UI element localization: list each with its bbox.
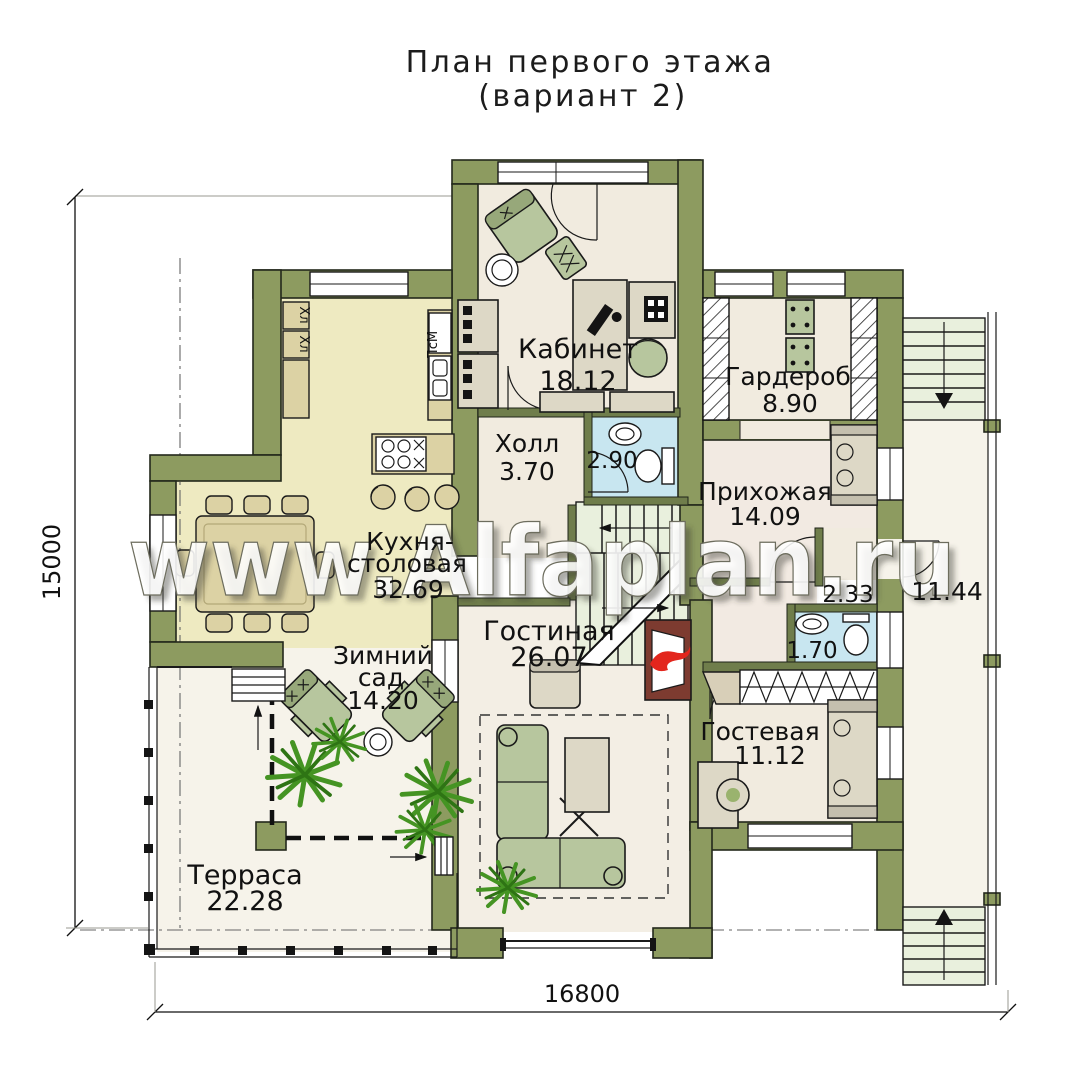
right-stairs-bottom bbox=[903, 907, 985, 985]
fireplace bbox=[645, 620, 691, 700]
dimension-horizontal-value: 16800 bbox=[544, 980, 620, 1008]
guest-bed bbox=[828, 700, 877, 818]
guest-bottom-window bbox=[748, 824, 852, 848]
label-wintergarden-area: 14.20 bbox=[347, 686, 419, 715]
entry-furniture bbox=[831, 425, 877, 505]
title-line-2: (вариант 2) bbox=[478, 79, 688, 114]
label-kitchen-2: столовая bbox=[347, 549, 467, 578]
wintergarden-column bbox=[256, 822, 286, 850]
wardrobe-window-1 bbox=[715, 272, 773, 296]
dishwasher-label: ПсМ bbox=[426, 331, 441, 359]
wc1-sink bbox=[609, 423, 641, 445]
kitchen-top-window bbox=[310, 272, 408, 296]
right-stairs-top bbox=[903, 318, 985, 420]
guest-right-window bbox=[877, 727, 903, 779]
floor-plan-page: План первого этажа (вариант 2) bbox=[0, 0, 1080, 1080]
living-bottom-window bbox=[500, 938, 656, 951]
terrace-steps-right bbox=[435, 837, 453, 875]
wc2-toilet bbox=[844, 625, 868, 655]
label-hall-area: 3.70 bbox=[499, 457, 555, 486]
stove bbox=[376, 437, 426, 471]
printer-icon bbox=[644, 296, 668, 322]
coffee-table bbox=[565, 738, 609, 812]
label-entry-area: 14.09 bbox=[729, 502, 801, 531]
label-hall: Холл bbox=[495, 429, 559, 458]
balcony-floor bbox=[903, 420, 988, 907]
label-terrace-area: 22.28 bbox=[206, 886, 283, 917]
title-line-1: План первого этажа bbox=[406, 45, 775, 80]
label-wc2-area: 1.70 bbox=[786, 638, 837, 664]
wardrobe-opening bbox=[740, 421, 830, 439]
garden-table bbox=[364, 728, 392, 756]
wardrobe-window-2 bbox=[787, 272, 845, 296]
entry-right-window bbox=[877, 448, 903, 500]
label-office-area: 18.12 bbox=[539, 366, 616, 397]
office-window bbox=[498, 162, 648, 183]
kitchen-counter-left bbox=[283, 360, 309, 418]
label-wardrobe-area: 8.90 bbox=[762, 389, 818, 418]
balcony-railing bbox=[988, 312, 996, 985]
kitchen-sink bbox=[429, 356, 451, 400]
wardrobe-unit-left bbox=[703, 298, 729, 420]
label-guest-area: 11.12 bbox=[734, 741, 806, 770]
label-wardrobe: Гардероб bbox=[725, 362, 851, 391]
label-wc1-area: 2.90 bbox=[586, 448, 637, 474]
office-side-table bbox=[486, 254, 518, 286]
dimension-horizontal: 16800 bbox=[147, 962, 1016, 1020]
label-closet-area: 2.33 bbox=[822, 582, 873, 608]
terrace-steps-top bbox=[232, 669, 285, 701]
label-living-area: 26.07 bbox=[510, 642, 587, 673]
fridge-2-label: Хл bbox=[296, 335, 311, 352]
title: План первого этажа (вариант 2) bbox=[406, 45, 775, 114]
label-kitchen-area: 32.69 bbox=[372, 575, 444, 604]
dimension-vertical-value: 15000 bbox=[38, 524, 66, 600]
entry-bench bbox=[831, 425, 877, 505]
label-office: Кабинет bbox=[518, 334, 638, 365]
wardrobe-unit-right bbox=[851, 298, 877, 420]
floor-plan-drawing: План первого этажа (вариант 2) bbox=[0, 0, 1080, 1080]
wardrobe-island-1 bbox=[786, 300, 814, 334]
wc1-toilet-tank bbox=[662, 448, 674, 484]
label-balcony-area: 11.44 bbox=[911, 577, 983, 606]
wc1-toilet bbox=[635, 450, 661, 482]
fridge-1-label: Хл bbox=[296, 306, 311, 323]
office-cabinet-low-2 bbox=[610, 392, 674, 412]
